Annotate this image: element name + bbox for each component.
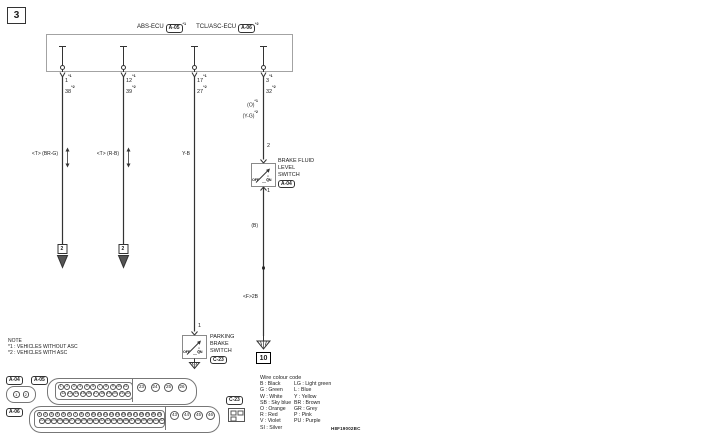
pin-number: 38 [65, 89, 71, 95]
wiring-diagram-page: 3 ABS-ECU A-05 *1 TCL/ASC-ECU A-06 *2 1*… [0, 0, 701, 435]
pin-number: 32 [266, 89, 272, 95]
connector-pin: 10 [91, 412, 97, 418]
connector-pin-large: 23 [137, 383, 146, 392]
connector-pin: 41 [153, 418, 159, 424]
connector-pin: 30 [87, 418, 93, 424]
a05-small-pin-block: 1234567891011 1213141516171819202122 [55, 382, 133, 400]
connector-pin: 19 [106, 391, 112, 397]
connector-label-a04: A-04 [6, 376, 23, 385]
tcl-asc-ecu-note: *2 [255, 22, 259, 26]
connector-pin: 2 [43, 412, 49, 418]
connector-pin: 17 [93, 391, 99, 397]
ecu-box [47, 35, 293, 72]
pin-label-wire-4: 3*1 32*2 [266, 74, 276, 96]
connector-pin-large: 45 [194, 411, 203, 420]
page-number: 3 [7, 7, 26, 24]
wire-colour-code-legend: Wire colour code B : Black LG : Light gr… [260, 375, 331, 431]
wire-colour: (O) [247, 103, 254, 109]
connector-pin: 34 [111, 418, 117, 424]
connector-pin: 6 [90, 384, 96, 390]
a05-divider [132, 379, 133, 402]
connector-pin: 18 [99, 391, 105, 397]
wire-note: *2 [254, 110, 258, 114]
connector-pin: 8 [79, 412, 85, 418]
pin-label-wire-2: 12*1 39*2 [126, 74, 136, 96]
connector-pin: 6 [67, 412, 73, 418]
connector-pin: 21 [157, 412, 163, 418]
connector-pin: 25 [57, 418, 63, 424]
connector-pin: 3 [71, 384, 77, 390]
connector-pin: 21 [119, 391, 125, 397]
connector-pin: 37 [129, 418, 135, 424]
pb-connector-ref: C-23 [210, 356, 227, 365]
connector-pin: 2 [64, 384, 70, 390]
note-line: *2 : VEHICLES WITH ASC [8, 350, 78, 356]
pin-note: *1 [269, 74, 273, 78]
connector-a06-pinout: 123456789101112131415161718192021 222324… [29, 406, 220, 433]
connector-pin: 38 [135, 418, 141, 424]
tcl-asc-ecu-connector-ref: A-06 [238, 24, 255, 33]
continuation-arrow-1-number: 2 [61, 246, 65, 252]
pin-number: 1 [65, 78, 68, 84]
pb-switch-pin-top: 1 [198, 323, 201, 329]
connector-pin: 16 [86, 391, 92, 397]
ecu-pin-terminals [59, 47, 267, 78]
wire-2-colour-label: <T> (R-B) [77, 151, 119, 157]
legend-col1: SI : Silver [260, 425, 294, 431]
wire-4-lower-label: <F>2B [232, 294, 258, 300]
connector-a04-pinout: 12 [6, 386, 36, 403]
bfl-switch-off-label: OFF [252, 178, 259, 182]
diagram-code: H8F19002BC [331, 426, 361, 431]
wire-3-colour-label: Y-B [148, 151, 190, 157]
connector-pin: 33 [105, 418, 111, 424]
connector-a05-pinout: 1234567891011 1213141516171819202122 232… [47, 378, 197, 405]
pin-note: *2 [71, 85, 75, 89]
pin-note: *2 [272, 85, 276, 89]
connector-pin: 28 [75, 418, 81, 424]
connector-pin-large: 44 [182, 411, 191, 420]
connector-pin: 13 [67, 391, 73, 397]
switch-name-line: SWITCH [278, 172, 314, 179]
connector-pin: 2 [23, 391, 30, 398]
connector-pin: 14 [115, 412, 121, 418]
c23-connector-drawing [229, 409, 245, 422]
connector-pin: 15 [121, 412, 127, 418]
connector-pin: 1 [58, 384, 64, 390]
connector-pin: 5 [61, 412, 67, 418]
switch-name-line: SWITCH [210, 348, 234, 355]
abs-ecu-label: ABS-ECU [137, 24, 164, 30]
pin-note: *1 [203, 74, 207, 78]
connector-pin: 11 [97, 412, 103, 418]
a06-small-pin-block: 123456789101112131415161718192021 222324… [34, 410, 165, 428]
pin-note: *2 [203, 85, 207, 89]
pin-note: *1 [132, 74, 136, 78]
pin-number: 39 [126, 89, 132, 95]
connector-label-c23: C-23 [226, 396, 243, 405]
connector-pin: 42 [159, 418, 165, 424]
connector-pin: 40 [147, 418, 153, 424]
abs-ecu-note: *1 [183, 22, 187, 26]
wire-1-colour-label: <T> (BR-G) [16, 151, 58, 157]
connector-pin: 35 [117, 418, 123, 424]
legend-row: SI : Silver [260, 425, 331, 431]
bfl-connector-ref: A-04 [278, 180, 295, 189]
connector-pin: 22 [39, 418, 45, 424]
connector-pin-large: 24 [151, 383, 160, 392]
connector-pin: 3 [49, 412, 55, 418]
wire-4-colour-label: (O)*1 (Y-G)*2 [214, 99, 258, 120]
bfl-switch-pin-bottom: 1 [267, 188, 270, 194]
pb-switch-on-label: ON [197, 350, 202, 354]
tcl-asc-ecu-label: TCL/ASC-ECU [196, 24, 236, 30]
connector-pin: 19 [145, 412, 151, 418]
connector-pin: 16 [127, 412, 133, 418]
connector-pin: 39 [141, 418, 147, 424]
connector-pin: 15 [80, 391, 86, 397]
a06-divider [165, 407, 166, 430]
connector-pin: 23 [45, 418, 51, 424]
schematic-linework [0, 0, 701, 435]
abs-ecu-connector-ref: A-05 [166, 24, 183, 33]
parking-brake-switch-symbol [183, 332, 207, 359]
connector-pin: 27 [69, 418, 75, 424]
ground-point-number: 10 [256, 352, 271, 364]
connector-pin: 13 [109, 412, 115, 418]
wire-4-mid-colour-label: (B) [232, 223, 258, 229]
wire-note: *1 [254, 99, 258, 103]
connector-pin: 22 [125, 391, 131, 397]
pin-note: *2 [132, 85, 136, 89]
connector-pin-large: 25 [164, 383, 173, 392]
wire-junction-dot [262, 267, 265, 270]
switch-name-line: LEVEL [278, 165, 314, 172]
connector-pin: 32 [99, 418, 105, 424]
bfl-switch-pin-top: 2 [267, 143, 270, 149]
connector-pin: 7 [97, 384, 103, 390]
connector-pin: 9 [110, 384, 116, 390]
connector-label-a05: A-05 [31, 376, 48, 385]
connector-pin: 18 [139, 412, 145, 418]
parking-brake-switch-name: PARKING BRAKE SWITCH C-23 [210, 334, 234, 364]
pb-switch-off-label: OFF [183, 350, 190, 354]
wire-colour: (Y-G) [243, 113, 255, 119]
connector-pin: 7 [73, 412, 79, 418]
main-ground-symbol [257, 336, 270, 349]
pin-number: 17 [197, 78, 203, 84]
pin-number: 3 [266, 78, 269, 84]
connector-pin-large: 43 [170, 411, 179, 420]
legend-col2: PU : Purple [294, 418, 321, 424]
connector-pin: 10 [116, 384, 122, 390]
switch-name-line: PARKING [210, 334, 234, 341]
switch-name-line: BRAKE FLUID [278, 158, 314, 165]
pin-label-wire-1: 1*1 38*2 [65, 74, 75, 96]
connector-pin: 8 [103, 384, 109, 390]
continuation-arrow-2-number: 2 [122, 246, 126, 252]
pin-number: 27 [197, 89, 203, 95]
connector-pin: 24 [51, 418, 57, 424]
connector-pin: 5 [84, 384, 90, 390]
connector-pin-large: 26 [178, 383, 187, 392]
connector-pin: 1 [13, 391, 20, 398]
connector-pin: 14 [73, 391, 79, 397]
pin-label-wire-3: 17*1 27*2 [197, 74, 207, 96]
connector-pin: 4 [55, 412, 61, 418]
connector-pin: 20 [151, 412, 157, 418]
connector-pin: 11 [123, 384, 129, 390]
connector-pin: 26 [63, 418, 69, 424]
connector-pin: 9 [85, 412, 91, 418]
connector-pin: 17 [133, 412, 139, 418]
ecu-header: ABS-ECU A-05 *1 TCL/ASC-ECU A-06 *2 [137, 24, 259, 33]
connector-pin: 4 [77, 384, 83, 390]
bfl-switch-on-label: ON [266, 178, 271, 182]
note-block: NOTE *1 : VEHICLES WITHOUT ASC*2 : VEHIC… [8, 338, 78, 356]
parking-brake-ground-symbol [190, 359, 200, 369]
pin-note: *1 [68, 74, 72, 78]
brake-fluid-level-switch-name: BRAKE FLUID LEVEL SWITCH A-04 [278, 158, 314, 188]
connector-label-a06: A-06 [6, 408, 23, 417]
pin-number: 12 [126, 78, 132, 84]
connector-pin: 36 [123, 418, 129, 424]
switch-name-line: BRAKE [210, 341, 234, 348]
connector-pin: 1 [37, 412, 43, 418]
connector-pin: 29 [81, 418, 87, 424]
connector-pin: 31 [93, 418, 99, 424]
connector-pin-large: 46 [206, 411, 215, 420]
connector-pin: 12 [103, 412, 109, 418]
connector-pin: 20 [112, 391, 118, 397]
connector-pin: 12 [60, 391, 66, 397]
brake-fluid-level-switch-symbol [252, 160, 276, 191]
